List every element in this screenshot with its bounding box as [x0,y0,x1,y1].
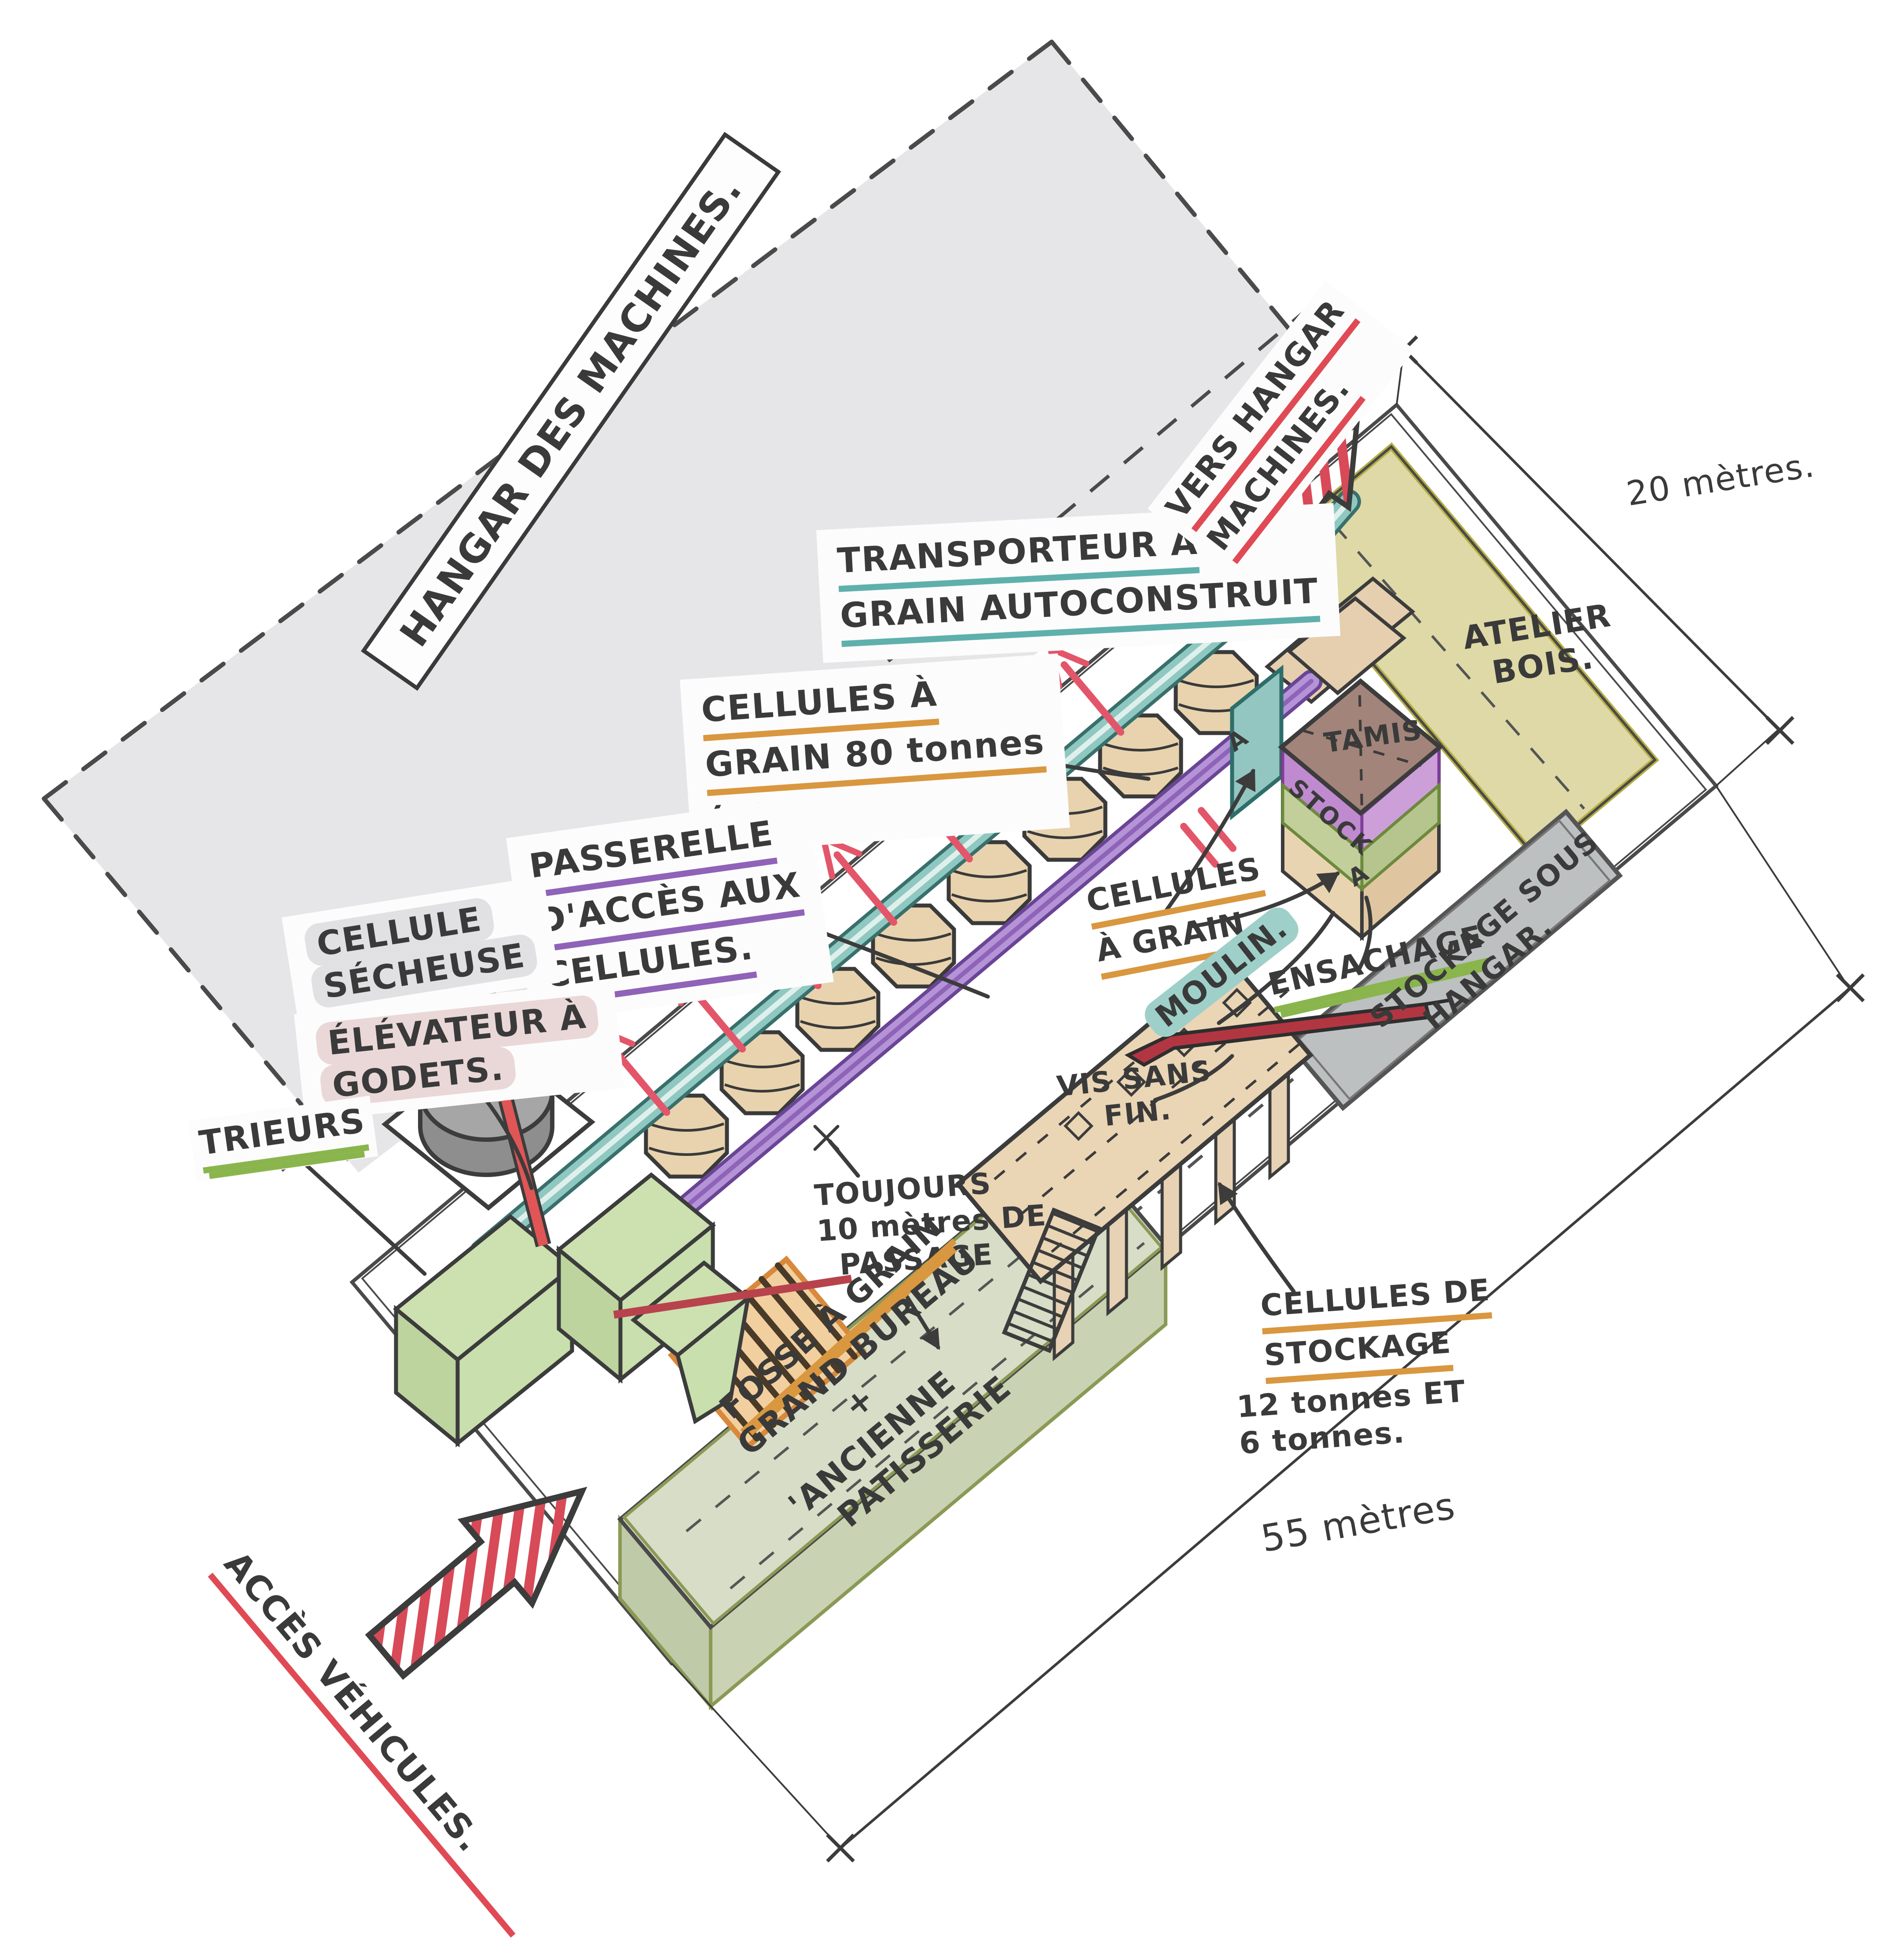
label-line: STOCKAGE [1263,1325,1453,1384]
sketch-page: { "colors": { "paper": "#ffffff", "hanga… [0,0,1904,1931]
leader-cellules-stockage [1220,1185,1294,1291]
label-line: FIN. [1102,1093,1173,1134]
label-cellules-stockage: CELLULES DE STOCKAGE 12 tonnes ET 6 tonn… [1259,1273,1501,1460]
